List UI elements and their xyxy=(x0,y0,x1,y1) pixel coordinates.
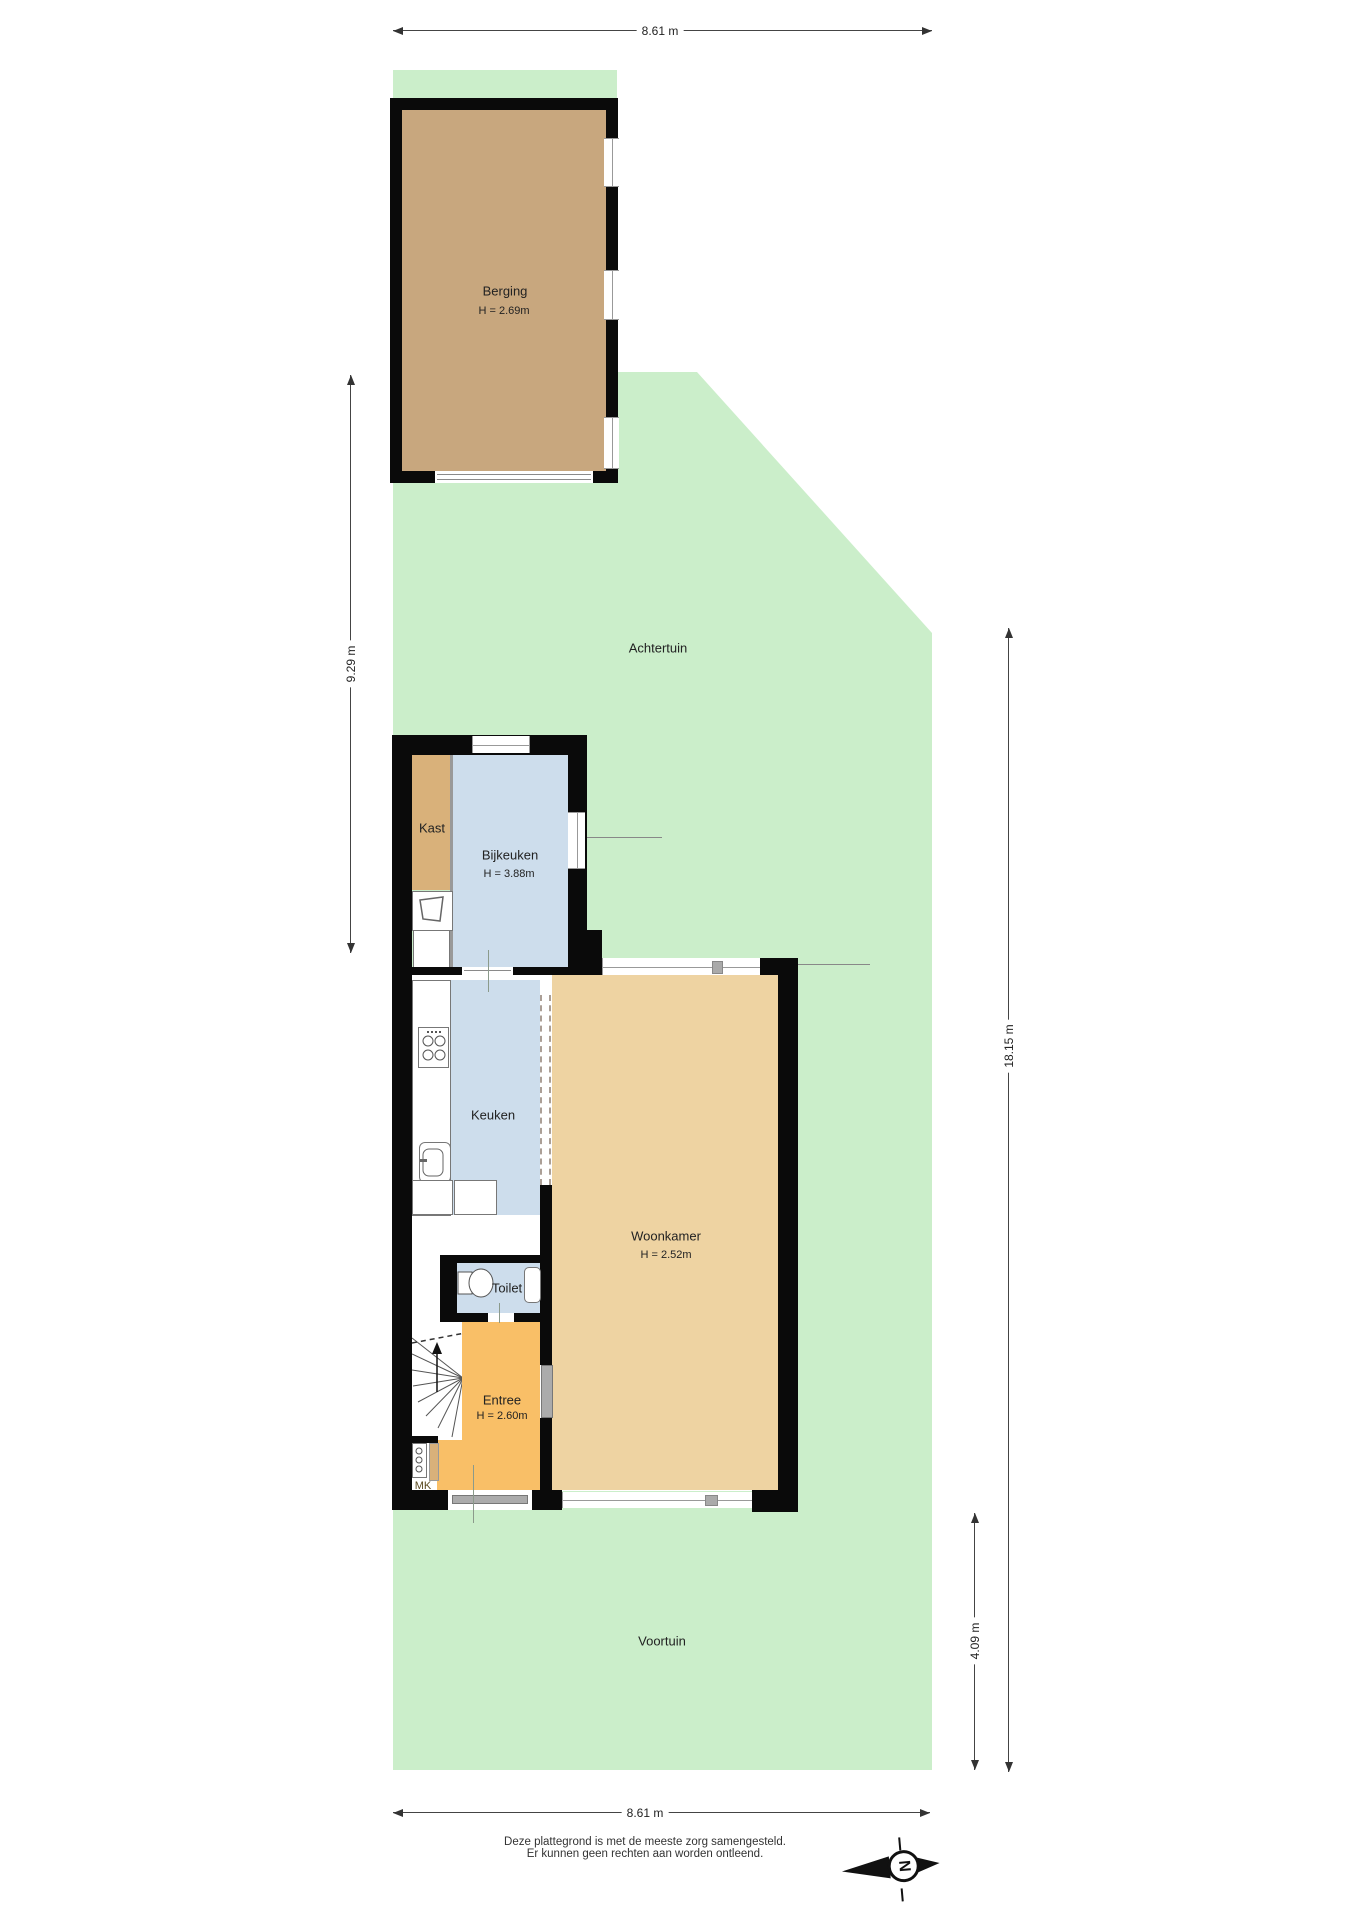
compass-circle: N xyxy=(886,1849,921,1884)
appliance-fixture xyxy=(413,930,450,968)
window-tick xyxy=(587,837,662,838)
dim-arrow xyxy=(920,1809,930,1817)
dim-arrow xyxy=(393,1809,403,1817)
open-connection xyxy=(540,995,551,1185)
berging-window xyxy=(604,270,619,320)
berging-window xyxy=(604,417,619,469)
compass-north-indicator: N xyxy=(840,1836,949,1905)
wc-fixture xyxy=(456,1266,496,1300)
door-tick xyxy=(473,1465,474,1523)
front-window xyxy=(562,1492,754,1508)
bijkeuken-side-window xyxy=(568,812,585,869)
dim-arrow xyxy=(971,1513,979,1523)
window-mullion xyxy=(705,1495,718,1506)
dimension-right-short-label: 4.09 m xyxy=(968,1618,982,1665)
woonkamer-rear-window xyxy=(602,958,762,975)
entree-height-label: H = 2.60m xyxy=(476,1410,527,1422)
wall xyxy=(540,1185,552,1365)
interior-door xyxy=(541,1365,553,1418)
dim-arrow xyxy=(1005,1762,1013,1772)
meter-fixture xyxy=(412,1443,427,1478)
counter-cabinet xyxy=(454,1180,497,1215)
toilet-top-wall xyxy=(440,1255,540,1263)
mk-door xyxy=(429,1443,439,1481)
sink-fixture xyxy=(419,1142,451,1183)
achtertuin-label: Achtertuin xyxy=(629,641,688,656)
door-tick xyxy=(499,1303,500,1323)
dim-arrow xyxy=(347,375,355,385)
berging-label: Berging xyxy=(483,284,528,299)
toilet-left-wall xyxy=(440,1255,457,1322)
floorplan-page: Berging H = 2.69m Kast Bijkeuken H = 3.8… xyxy=(0,0,1358,1920)
window-tick xyxy=(798,964,870,965)
toilet-door-opening xyxy=(488,1313,514,1322)
window-mullion xyxy=(712,961,723,974)
dim-arrow xyxy=(393,27,403,35)
compass-tick xyxy=(901,1888,904,1901)
front-wall-pier xyxy=(532,1490,562,1510)
bijkeuken-height-label: H = 3.88m xyxy=(483,868,534,880)
dim-arrow xyxy=(922,27,932,35)
sink-fixture xyxy=(412,891,453,931)
entree-label: Entree xyxy=(483,1393,521,1408)
voortuin-label: Voortuin xyxy=(638,1634,686,1649)
compass-arrow-icon xyxy=(841,1856,891,1882)
entree-floor xyxy=(437,1440,462,1490)
front-door xyxy=(452,1495,528,1504)
wall xyxy=(540,1418,552,1490)
kast-label: Kast xyxy=(419,821,445,836)
front-wall-corner xyxy=(752,1490,798,1512)
bijkeuken-rear-window xyxy=(472,736,530,753)
woonkamer-height-label: H = 2.52m xyxy=(640,1249,691,1261)
toilet-label: Toilet xyxy=(492,1281,522,1296)
dim-arrow xyxy=(347,943,355,953)
berging-height-label: H = 2.69m xyxy=(478,305,529,317)
door-tick xyxy=(488,950,489,992)
toilet-sink-fixture xyxy=(524,1267,541,1303)
dimension-bottom-label: 8.61 m xyxy=(622,1806,669,1820)
dimension-left-label: 9.29 m xyxy=(344,641,358,688)
stove-fixture xyxy=(418,1027,449,1068)
house-left-wall xyxy=(392,735,412,1510)
dimension-right-long xyxy=(1008,628,1009,1772)
compass-tick xyxy=(898,1837,901,1850)
house-right-wall xyxy=(778,958,798,1510)
dimension-top-label: 8.61 m xyxy=(637,24,684,38)
dimension-right-long-label: 18.15 m xyxy=(1002,1019,1016,1072)
woonkamer-label: Woonkamer xyxy=(631,1229,701,1244)
bijkeuken-label: Bijkeuken xyxy=(482,848,538,863)
mk-divider-wall xyxy=(412,1436,438,1443)
counter-cabinet xyxy=(412,1180,453,1215)
compass-letter: N xyxy=(894,1860,913,1873)
keuken-label: Keuken xyxy=(471,1108,515,1123)
berging-window xyxy=(604,138,619,187)
stairs xyxy=(412,1330,465,1440)
dim-arrow xyxy=(971,1760,979,1770)
front-wall xyxy=(392,1490,448,1510)
berging-door xyxy=(435,471,593,483)
dim-arrow xyxy=(1005,628,1013,638)
